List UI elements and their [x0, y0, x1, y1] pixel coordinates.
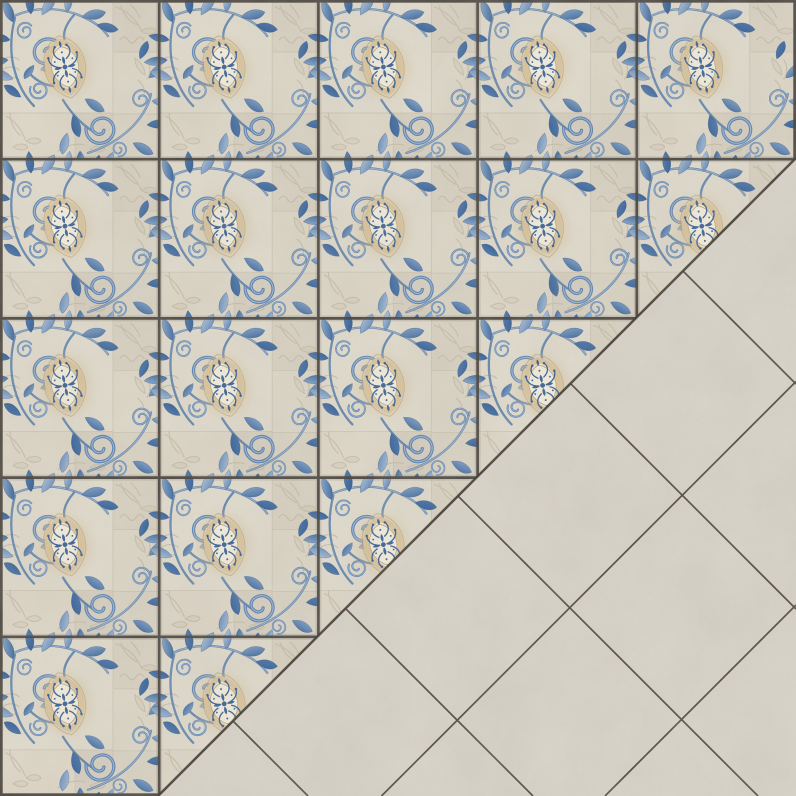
tile-texture-stage [0, 0, 796, 796]
tile-pattern-image [0, 0, 796, 796]
stone-noise-light-overlay [0, 0, 796, 796]
